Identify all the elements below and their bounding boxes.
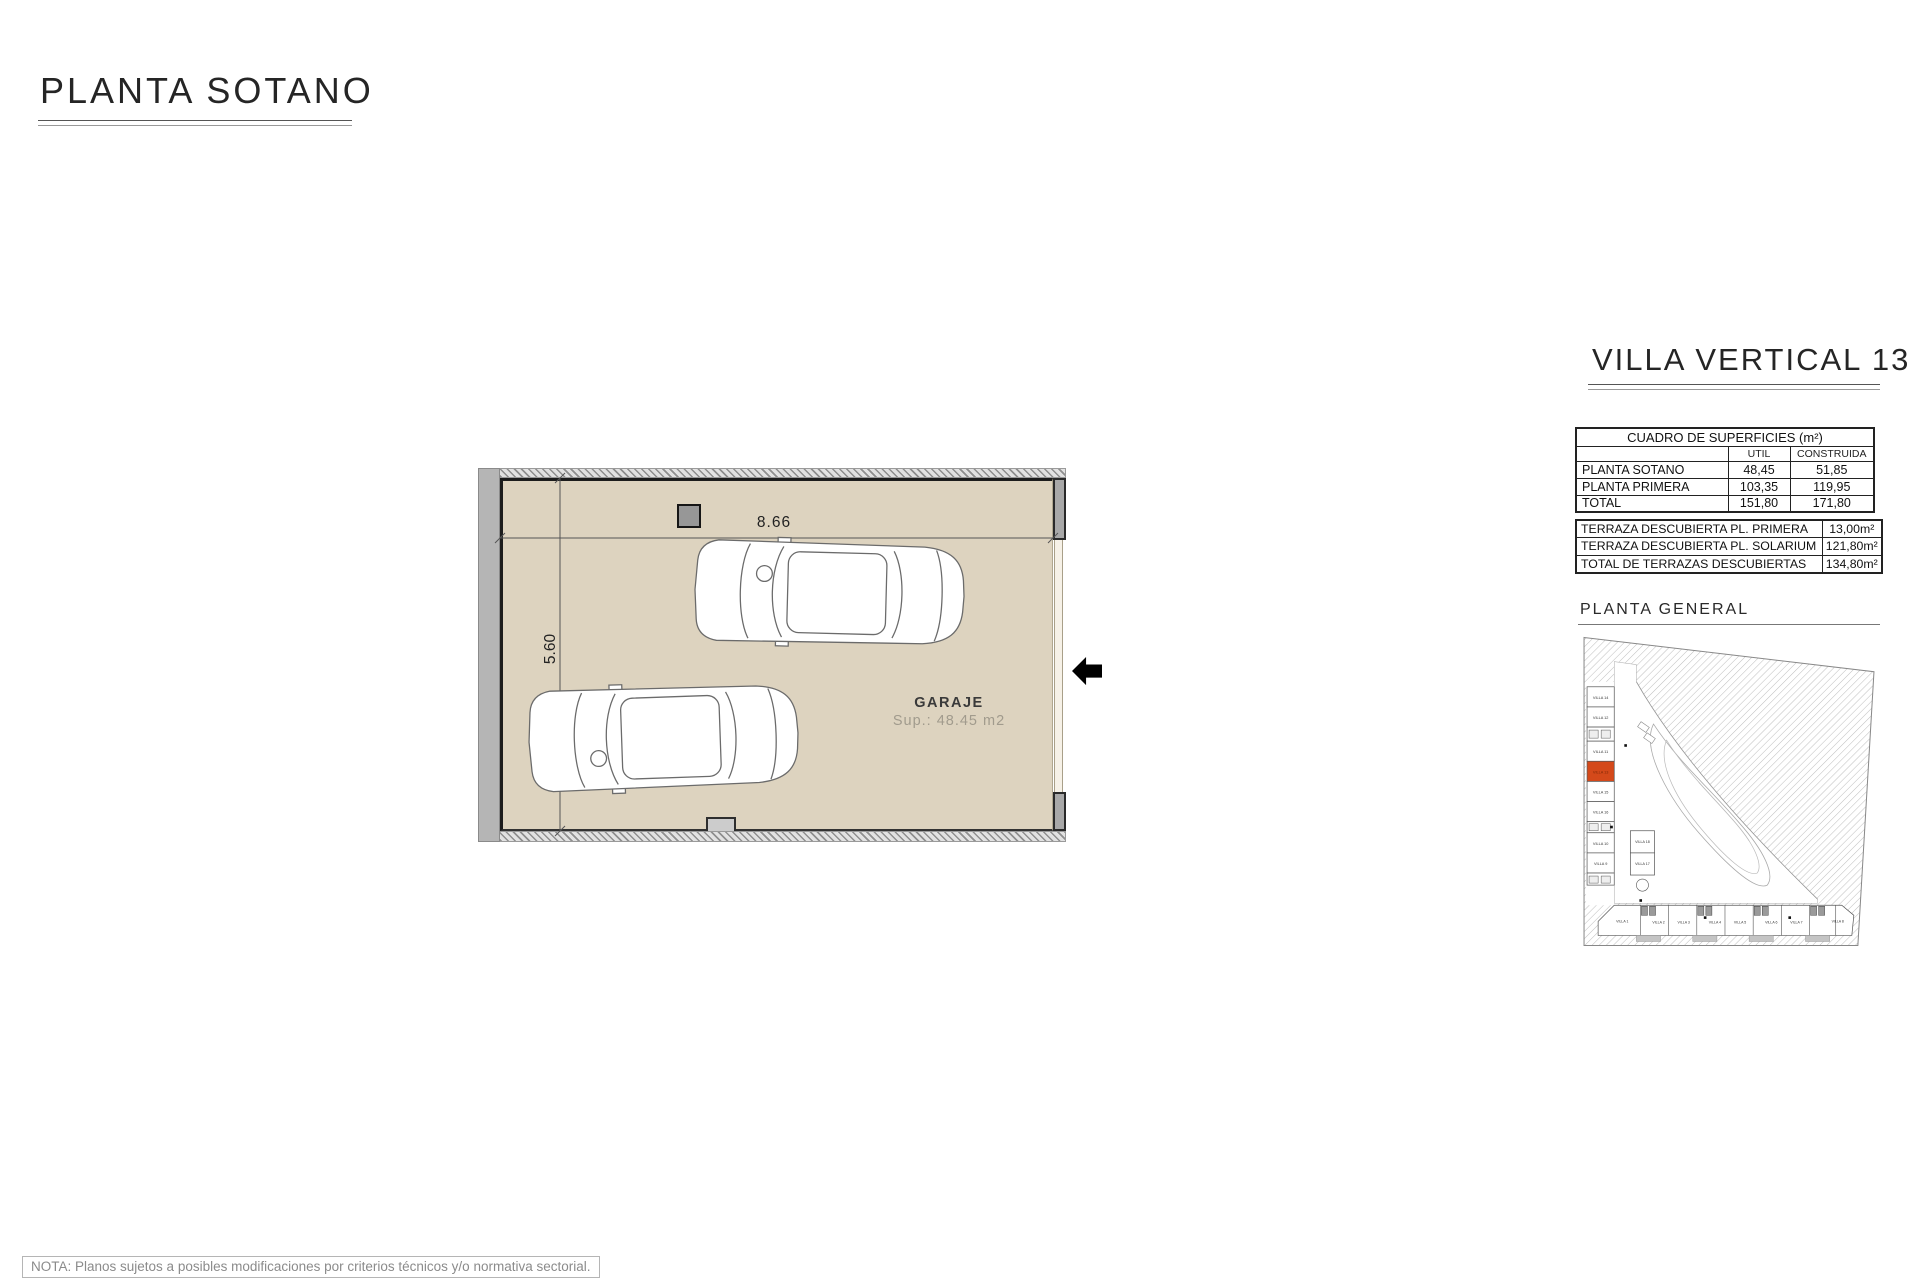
site-villa-label: VILLA 3 <box>1678 920 1690 924</box>
surfaces-row-util: 48,45 <box>1728 461 1790 478</box>
villa-title: VILLA VERTICAL 13 <box>1592 342 1910 378</box>
surfaces-table: CUADRO DE SUPERFICIES (m²) UTIL CONSTRUI… <box>1575 427 1875 513</box>
surfaces-row-label: TOTAL <box>1576 495 1728 512</box>
site-villa-label: VILLA 12 <box>1593 716 1608 720</box>
surfaces-row-construida: 51,85 <box>1790 461 1874 478</box>
site-villa-label: VILLA 5 <box>1734 920 1746 924</box>
sheet-title: PLANTA SOTANO <box>40 70 374 112</box>
planta-general-label: PLANTA GENERAL <box>1580 601 1749 619</box>
room-area: Sup.: 48.45 m2 <box>874 713 1024 729</box>
site-villa-label: VILLA 7 <box>1790 920 1802 924</box>
surfaces-row-label: PLANTA PRIMERA <box>1576 478 1728 495</box>
site-villa-label: VILLA 14 <box>1593 696 1609 700</box>
site-villa-label: VILLA 16 <box>1593 811 1608 815</box>
sheet-title-underline <box>38 120 352 126</box>
terrace-row-value: 13,00m² <box>1822 520 1882 538</box>
car-icon <box>524 674 804 801</box>
site-villa-label: VILLA 11 <box>1593 750 1608 754</box>
site-villa-label: VILLA 8 <box>1832 919 1844 923</box>
site-villa-label: VILLA 18 <box>1635 840 1650 844</box>
table-row: TERRAZA DESCUBIERTA PL. PRIMERA 13,00m² <box>1576 520 1882 538</box>
car-icon <box>691 533 970 652</box>
dimension-height-label: 5.60 <box>542 626 560 672</box>
note-text: NOTA: Planos sujetos a posibles modifica… <box>22 1256 600 1278</box>
surfaces-col-util: UTIL <box>1728 446 1790 461</box>
terrace-row-label: TOTAL DE TERRAZAS DESCUBIERTAS <box>1576 555 1822 573</box>
room-name: GARAJE <box>874 695 1024 711</box>
surfaces-table-title: CUADRO DE SUPERFICIES (m²) <box>1576 428 1874 446</box>
room-label-block: GARAJE Sup.: 48.45 m2 <box>874 695 1024 729</box>
entrance-arrow-icon <box>1072 654 1102 688</box>
surfaces-row-construida: 119,95 <box>1790 478 1874 495</box>
site-villa-label: VILLA 6 <box>1765 920 1777 924</box>
site-villa-label: VILLA 1 <box>1616 919 1628 923</box>
table-row: TERRAZA DESCUBIERTA PL. SOLARIUM 121,80m… <box>1576 538 1882 556</box>
terrace-row-value: 134,80m² <box>1822 555 1882 573</box>
villa-title-underline <box>1588 384 1880 390</box>
terrace-row-value: 121,80m² <box>1822 538 1882 556</box>
surfaces-row-util: 103,35 <box>1728 478 1790 495</box>
site-villa-label-highlighted: VILLA 13 <box>1593 770 1608 774</box>
surfaces-col-construida: CONSTRUIDA <box>1790 446 1874 461</box>
surfaces-row-util: 151,80 <box>1728 495 1790 512</box>
plan-sheet: PLANTA SOTANO 8.66 5.60 <box>0 0 1920 1280</box>
terrace-row-label: TERRAZA DESCUBIERTA PL. PRIMERA <box>1576 520 1822 538</box>
site-plan: VILLA 14 VILLA 12 VILLA 11 VILLA 13 VILL… <box>1578 631 1878 956</box>
terrace-row-label: TERRAZA DESCUBIERTA PL. SOLARIUM <box>1576 538 1822 556</box>
table-row: TOTAL 151,80 171,80 <box>1576 495 1874 512</box>
planta-general-underline <box>1578 624 1880 625</box>
site-villa-label: VILLA 9 <box>1594 862 1607 866</box>
garage-floor-plan: 8.66 5.60 <box>478 468 1066 842</box>
site-villa-label: VILLA 17 <box>1635 862 1650 866</box>
site-villa-label: VILLA 10 <box>1593 842 1608 846</box>
surfaces-row-construida: 171,80 <box>1790 495 1874 512</box>
table-row: PLANTA SOTANO 48,45 51,85 <box>1576 461 1874 478</box>
site-villa-label: VILLA 15 <box>1593 791 1608 795</box>
site-villa-label: VILLA 4 <box>1709 920 1721 924</box>
surfaces-row-label: PLANTA SOTANO <box>1576 461 1728 478</box>
table-row: TOTAL DE TERRAZAS DESCUBIERTAS 134,80m² <box>1576 555 1882 573</box>
dimension-width-label: 8.66 <box>739 514 809 532</box>
surfaces-col-empty <box>1576 446 1728 461</box>
terraces-table: TERRAZA DESCUBIERTA PL. PRIMERA 13,00m² … <box>1575 519 1883 574</box>
site-villa-label: VILLA 2 <box>1652 920 1664 924</box>
table-row: PLANTA PRIMERA 103,35 119,95 <box>1576 478 1874 495</box>
